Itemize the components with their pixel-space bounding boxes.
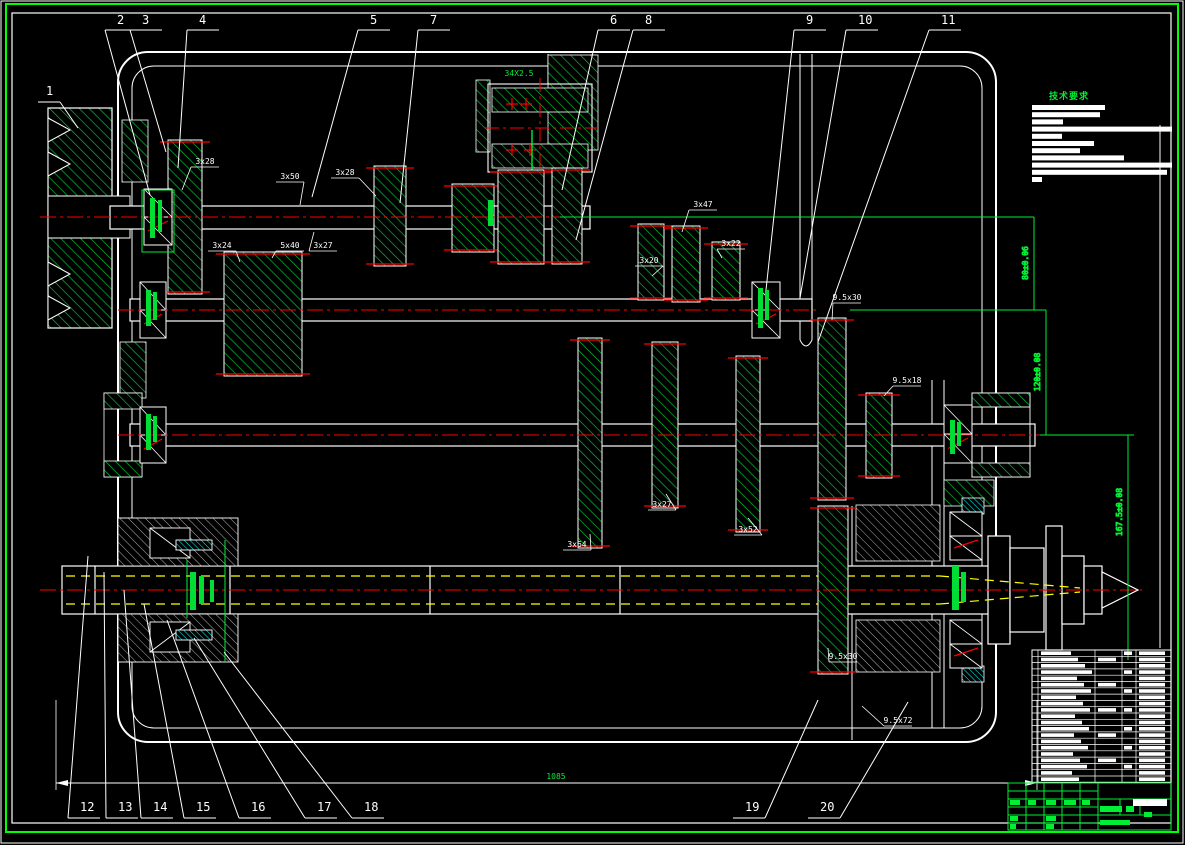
note-line [1032, 170, 1167, 175]
center-distance-dim-2: 120±0.08 [1033, 353, 1042, 392]
svg-text:3x50: 3x50 [280, 172, 299, 181]
callout-number: 17 [317, 800, 331, 814]
bom-row [1041, 683, 1165, 687]
bom-row [1041, 708, 1165, 712]
svg-text:9.5x18: 9.5x18 [893, 376, 922, 385]
bom-row [1041, 733, 1165, 737]
svg-text:9.5x30: 9.5x30 [833, 293, 862, 302]
overall-dimension: 1085 [56, 700, 1037, 790]
overall-length-dim: 1085 [546, 772, 565, 781]
bom-row [1041, 689, 1165, 693]
svg-text:3x20: 3x20 [639, 256, 658, 265]
callout-number: 20 [820, 800, 834, 814]
callout-number: 15 [196, 800, 210, 814]
svg-text:3x27: 3x27 [652, 500, 671, 509]
note-line [1032, 134, 1062, 139]
callout-18: 18 [224, 652, 384, 818]
bom-parts-list [1032, 650, 1171, 782]
svg-text:3x24: 3x24 [212, 241, 231, 250]
center-distance-dim-3: 167.5±0.08 [1115, 488, 1124, 536]
bom-row [1041, 664, 1165, 668]
note-line [1032, 163, 1172, 168]
gear-section [444, 184, 502, 252]
callout-9: 9 [766, 13, 826, 290]
svg-text:5x40: 5x40 [280, 241, 299, 250]
bom-row [1041, 746, 1165, 750]
svg-text:3x27: 3x27 [313, 241, 332, 250]
bom-row [1041, 670, 1165, 674]
note-line [1032, 148, 1080, 153]
bom-row [1041, 727, 1165, 731]
bom-row [1041, 752, 1165, 756]
bearing-section [950, 512, 982, 560]
note-line [1032, 112, 1100, 117]
bom-row [1041, 651, 1165, 655]
svg-text:3x64: 3x64 [567, 540, 586, 549]
note-line [1032, 127, 1172, 132]
callout-number: 9 [806, 13, 813, 27]
notes-title: 技术要求 [1049, 90, 1089, 102]
dim-label-9.5x72: 9.5x72 [862, 706, 913, 726]
dim-label-3x27: 3x27 [309, 232, 337, 251]
bearing-section [950, 620, 982, 668]
dim-label-3x28: 3x28 [331, 168, 376, 196]
callout-number: 14 [153, 800, 167, 814]
seal-ring [176, 540, 212, 550]
callout-number: 8 [645, 13, 652, 27]
callout-number: 2 [117, 13, 124, 27]
bom-row [1041, 765, 1165, 769]
bom-row [1041, 740, 1165, 744]
svg-text:1: 1 [46, 84, 53, 98]
svg-text:3x22: 3x22 [721, 239, 740, 248]
notes-text-lines [1032, 105, 1172, 182]
bom-row [1041, 771, 1165, 775]
callout-number: 5 [370, 13, 377, 27]
svg-text:3x47: 3x47 [693, 200, 712, 209]
cad-drawing: 34X2.5 34X2.5 80±0.06 120±0.08 167.5±0.0… [0, 0, 1185, 845]
bom-row [1041, 759, 1165, 763]
dim-label-9.5x30: 9.5x30 [832, 293, 862, 320]
bom-row [1041, 658, 1165, 662]
svg-text:9.5x72: 9.5x72 [884, 716, 913, 725]
gear-section [216, 252, 310, 376]
technical-notes-block: 技术要求 [1032, 90, 1172, 182]
callout-number: 10 [858, 13, 872, 27]
gear-section [664, 226, 708, 302]
callout-7: 7 [400, 13, 450, 203]
note-line [1032, 105, 1105, 110]
callout-number: 12 [80, 800, 94, 814]
center-distance-dim-1: 80±0.06 [1021, 246, 1030, 280]
title-block-name-cell [1133, 799, 1167, 806]
cad-drawing-canvas: 34X2.5 34X2.5 80±0.06 120±0.08 167.5±0.0… [0, 0, 1185, 845]
spindle-flange-3 [1046, 526, 1062, 650]
svg-text:3x28: 3x28 [195, 157, 214, 166]
callout-number: 11 [941, 13, 955, 27]
gear-section [704, 242, 748, 300]
bom-row [1041, 677, 1165, 681]
callout-number: 19 [745, 800, 759, 814]
note-line [1032, 155, 1124, 160]
dim-label-3x50: 3x50 [276, 172, 304, 205]
callout-number: 3 [142, 13, 149, 27]
callout-number: 4 [199, 13, 206, 27]
note-line [1032, 119, 1063, 124]
note-line [1032, 141, 1094, 146]
callout-number: 18 [364, 800, 378, 814]
bom-row [1041, 696, 1165, 700]
bom-row [1041, 702, 1165, 706]
bom-row [1041, 714, 1165, 718]
callout-number: 13 [118, 800, 132, 814]
callout-number: 16 [251, 800, 265, 814]
bom-row [1041, 777, 1165, 781]
svg-text:3x28: 3x28 [335, 168, 354, 177]
assembly-label-top: 34X2.5 [505, 69, 534, 78]
callout-number: 7 [430, 13, 437, 27]
callout-number: 6 [610, 13, 617, 27]
callout-19: 19 [733, 700, 818, 818]
note-line [1032, 177, 1042, 182]
svg-text:9.5x30: 9.5x30 [829, 652, 858, 661]
gear-section [810, 318, 854, 500]
bom-row [1041, 721, 1165, 725]
